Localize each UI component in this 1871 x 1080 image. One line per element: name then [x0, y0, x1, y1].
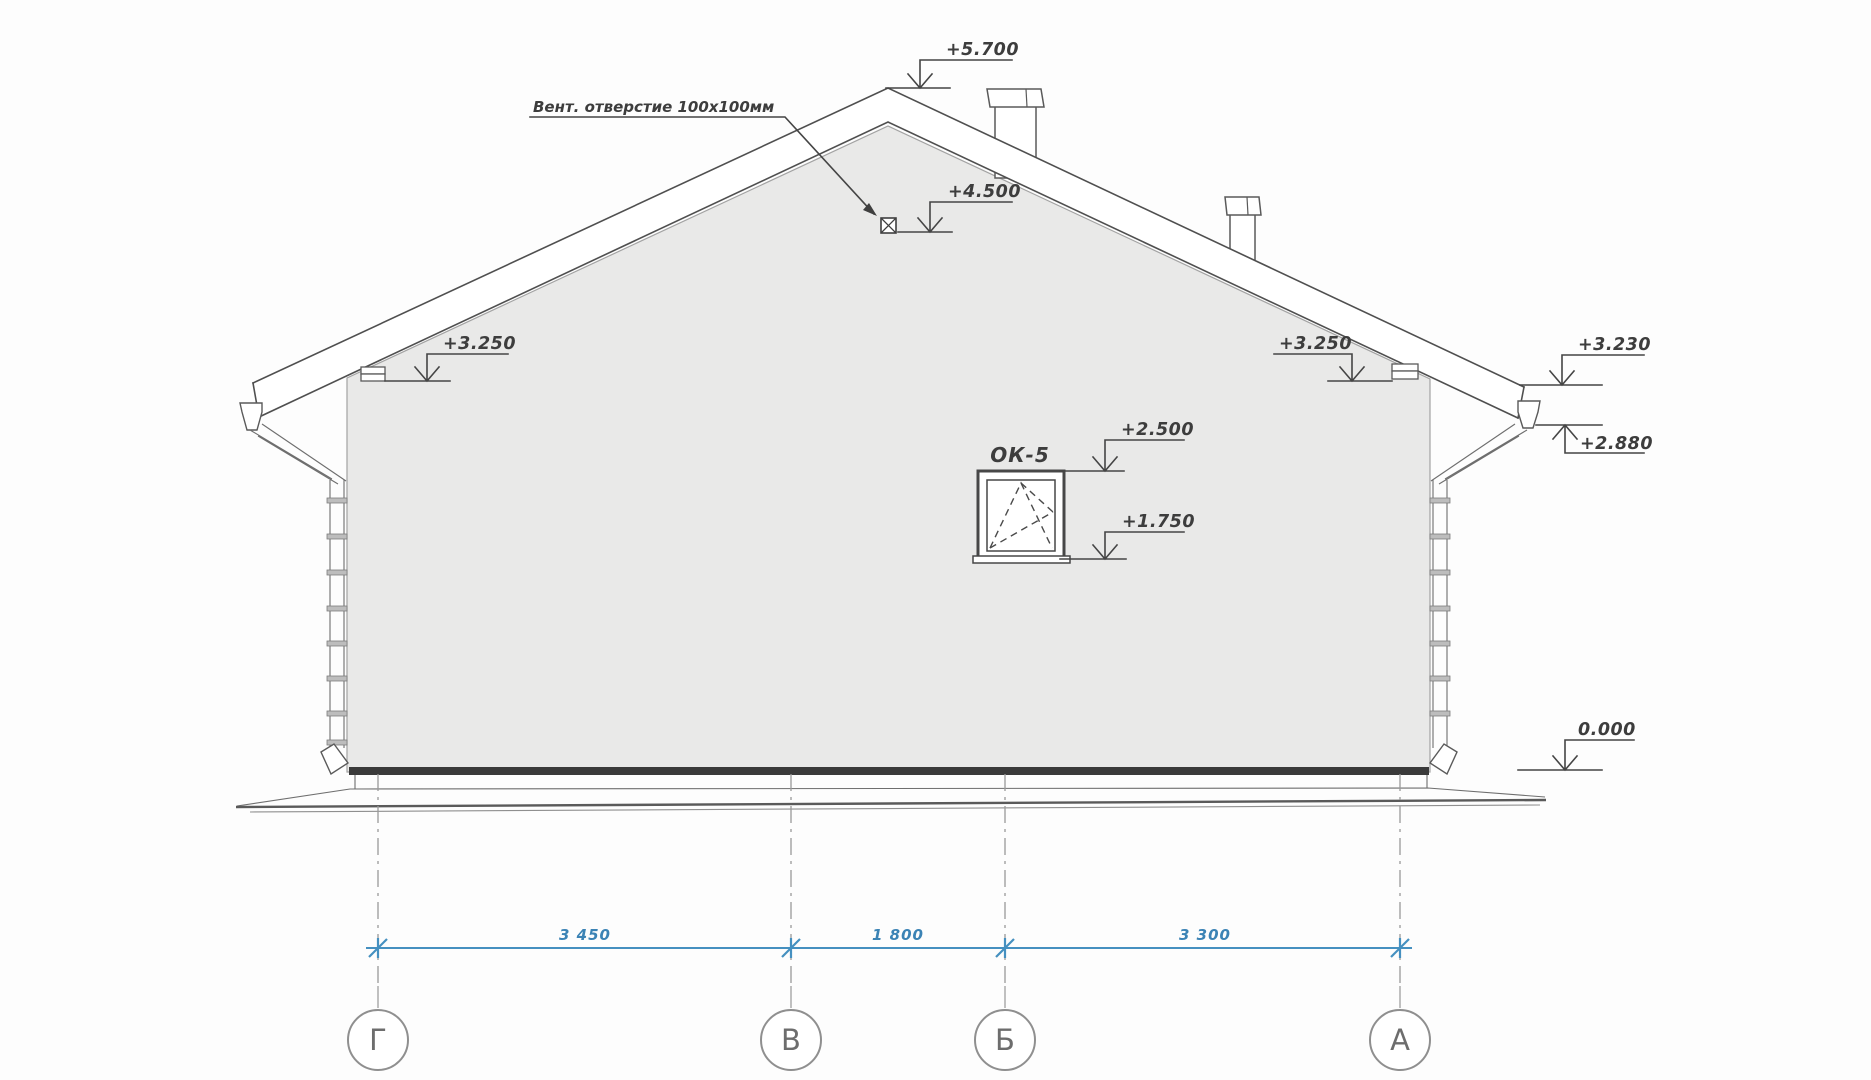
gutter-funnel-left: [240, 403, 262, 430]
elevation-mark-ground-symbol: [1518, 740, 1634, 770]
downspout-right-pipe: [1433, 480, 1447, 748]
elevation-mark-ridge-symbol: [886, 60, 1012, 88]
dimension-span-3: 3 300: [1179, 926, 1231, 944]
plinth-strip: [349, 767, 1429, 775]
axis-label-g: Г: [369, 1023, 387, 1057]
elevation-mark-gutter-right: +2.880: [1536, 425, 1653, 454]
chimney-1-cap: [987, 89, 1044, 107]
downspout-left-pipe: [330, 480, 344, 748]
downspout-left-outlet: [321, 744, 348, 774]
elevation-mark-eave-left-value: +3.250: [443, 334, 516, 354]
elevation-mark-gutter-right-value: +2.880: [1580, 434, 1653, 454]
window-label: ОК-5: [990, 443, 1050, 467]
elevation-mark-ridge-value: +5.700: [946, 40, 1019, 60]
downspout-left: [321, 480, 348, 774]
chimney-2-cap: [1225, 197, 1261, 215]
axis-label-v: В: [781, 1023, 801, 1057]
window-frame-inner: [987, 480, 1055, 551]
axis-label-a: А: [1390, 1023, 1410, 1057]
axis-label-b: Б: [995, 1023, 1015, 1057]
elevation-mark-roof-edge-right-value: +3.230: [1578, 335, 1651, 355]
soffit-right: [1431, 424, 1515, 481]
wall-plate-left-lower: [361, 374, 385, 381]
wall-plate-left-upper: [361, 367, 385, 374]
elevation-mark-roof-edge-right-symbol: [1520, 355, 1644, 385]
wall-plate-right-upper: [1392, 364, 1418, 371]
elevation-mark-ground-value: 0.000: [1578, 720, 1636, 740]
window-sill: [973, 556, 1070, 563]
axis-lines: [378, 774, 1400, 1008]
dimension-span-2: 1 800: [872, 926, 924, 944]
axis-circle-stubs: [378, 986, 1400, 1008]
dimension-span-1: 3 450: [559, 926, 611, 944]
elevation-drawing: ОК-5 Вент. отверстие 100х100мм +5.700 +4…: [0, 0, 1871, 1080]
base-connectors: [355, 775, 1427, 789]
drawing-sheet: ОК-5 Вент. отверстие 100х100мм +5.700 +4…: [0, 0, 1871, 1080]
wall-plate-right-lower: [1392, 371, 1418, 379]
downspout-elbow-top-right: [1439, 430, 1527, 484]
elevation-mark-roof-edge-right: +3.230: [1520, 335, 1651, 385]
elevation-mark-ground: 0.000: [1518, 720, 1636, 770]
base-and-blind-area: [236, 767, 1546, 812]
gutter-funnel-right: [1518, 401, 1540, 428]
elevation-mark-window-bottom-value: +1.750: [1122, 512, 1195, 532]
downspout-elbow-top-left: [250, 430, 338, 484]
elevation-mark-vent-value: +4.500: [948, 182, 1021, 202]
downspout-right: [1430, 480, 1457, 774]
downspout-right-outlet: [1430, 744, 1457, 774]
soffit-left: [262, 424, 346, 481]
elevation-mark-window-top-value: +2.500: [1121, 420, 1194, 440]
dimension-line: 3 450 1 800 3 300: [366, 926, 1412, 958]
vent-label: Вент. отверстие 100х100мм: [533, 98, 774, 116]
axis-bubbles: Г В Б А: [348, 1010, 1430, 1070]
elevation-mark-eave-right-value: +3.250: [1279, 334, 1352, 354]
elevation-mark-ridge: +5.700: [886, 40, 1019, 88]
